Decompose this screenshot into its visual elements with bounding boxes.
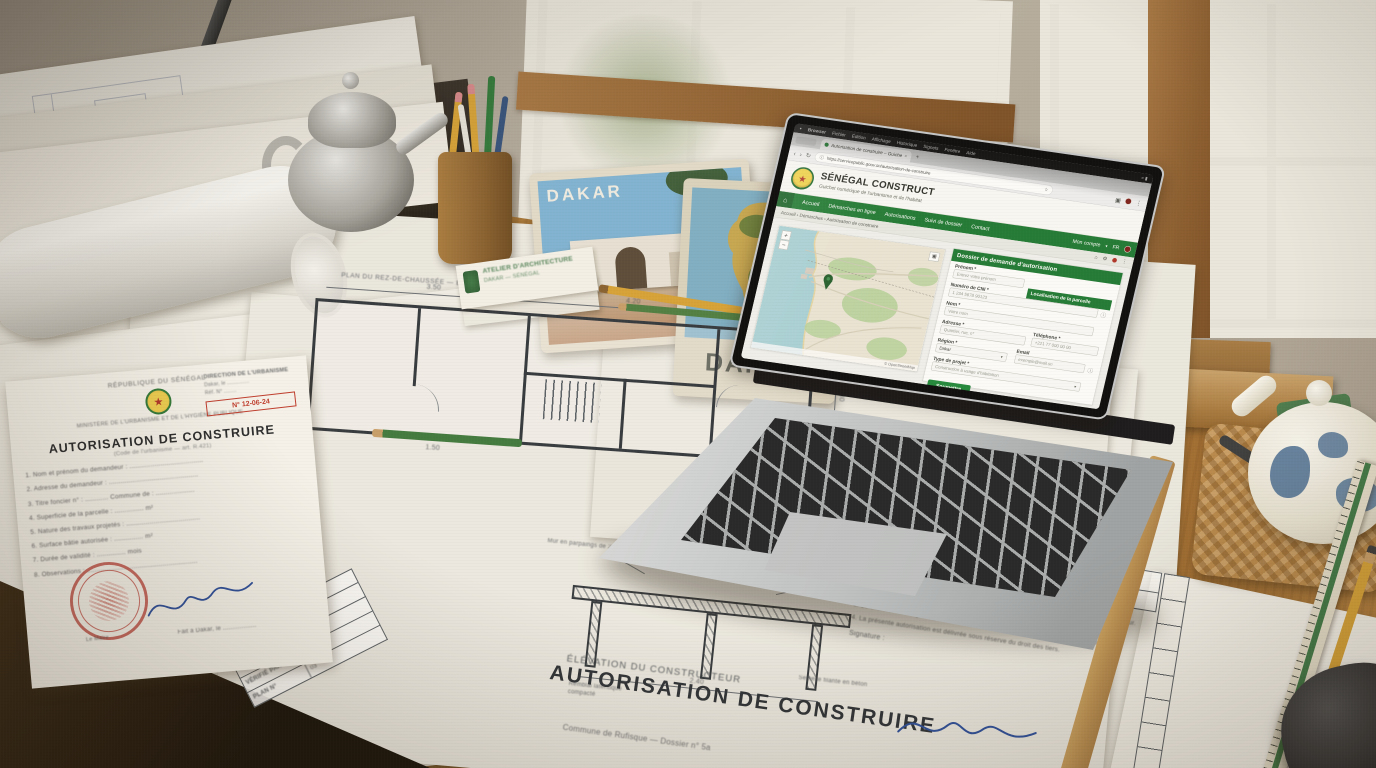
permit-document: RÉPUBLIQUE DU SÉNÉGAL ★ MINISTÈRE DE L'U… [5,355,333,688]
blue-floral-pattern [1318,432,1348,458]
form-body: Prénom * Entrez votre prénom Localisatio… [923,261,1120,405]
senegal-coat-of-arms: ★ [789,166,816,191]
desk-scene-photo: DAKAR DAKAR ATELIER D'ARCHITECTUR [0,0,1376,768]
favicon [824,142,829,147]
menubar-item[interactable]: Aide [966,150,976,156]
tab-close-icon[interactable]: × [904,153,908,158]
browser-tab[interactable] [795,136,817,146]
account-link[interactable]: Mon compte [1072,238,1101,248]
pencil-cup [438,152,512,264]
pen-signature [890,699,1045,766]
business-card-logo [463,270,481,294]
dimension-label: 3.50 [426,284,441,292]
new-tab-button[interactable]: + [915,153,920,161]
nav-item[interactable]: Accueil [801,199,820,207]
porcelain-teapot-knob [1306,380,1332,406]
info-icon[interactable]: ⓘ [1100,311,1107,320]
postcard-title: DAKAR [546,181,624,206]
site-info-icon[interactable]: ⓘ [819,154,825,161]
forward-icon[interactable]: › [799,151,803,158]
status-icons[interactable]: ≈ ▮ [1141,175,1149,181]
notification-badge[interactable] [1112,258,1118,263]
browser-menu-icon[interactable]: ⋮ [1135,199,1143,207]
apple-menu-icon[interactable]: ● [799,127,802,131]
nav-item[interactable]: Contact [970,223,990,232]
menubar-item[interactable]: Browser [807,127,826,135]
language-toggle[interactable]: FR [1112,244,1120,250]
nav-item[interactable]: Suivi de dossier [924,217,963,228]
laptop-base [585,388,1195,660]
plan-door-arc [413,384,441,412]
page-tools: ⌂ ⚙ ⋮ [1094,255,1128,265]
application-form: Dossier de demande d'autorisation Prénom… [922,248,1123,405]
coat-of-arms: ★ [144,387,172,415]
silver-teapot-lid [308,92,396,148]
map-widget[interactable]: + − ▣ © OpenStreetMap [750,225,946,372]
menubar-item[interactable]: Édition [851,133,866,140]
gear-icon[interactable]: ⚙ [1102,256,1108,262]
menubar-item[interactable]: Signets [923,144,939,151]
back-icon[interactable]: ‹ [793,150,797,157]
nav-item[interactable]: Autorisations [884,211,916,221]
phone-input[interactable]: +221 77 000 00 00 [1030,338,1099,357]
user-avatar[interactable] [1124,245,1132,252]
kebab-menu-icon[interactable]: ⋮ [1121,259,1127,265]
menubar-item[interactable]: Fichier [832,131,847,138]
browser-window: ● Browser Fichier Édition Affichage Hist… [741,123,1154,409]
doc-date-line: Fait à Dakar, le .................. [177,623,256,636]
bookmark-star-icon[interactable]: ☆ [1044,187,1049,193]
home-icon[interactable]: ⌂ [1094,255,1098,261]
menubar-item[interactable]: Fenêtre [944,147,961,154]
laptop-screen: ● Browser Fichier Édition Affichage Hist… [728,112,1166,421]
profile-avatar[interactable] [1124,198,1132,205]
info-icon[interactable]: ⓘ [1087,366,1094,375]
doc-form-items: 1. Nom et prénom du demandeur : ........… [25,448,311,578]
submit-button[interactable]: Soumettre [926,379,971,396]
map-layers-button[interactable]: ▣ [928,252,940,262]
chevron-down-icon: ▾ [1105,244,1108,249]
doc-ref-block: DIRECTION DE L'URBANISME Dakar, le .....… [203,366,302,415]
silver-teapot-knob [342,72,359,89]
dimension-label: 1.50 [425,444,440,452]
extensions-icon[interactable]: ▣ [1114,196,1121,204]
blue-floral-pattern [1270,446,1310,498]
reload-icon[interactable]: ↻ [805,151,812,159]
email-input[interactable]: exemple@mail.sn [1014,354,1086,373]
